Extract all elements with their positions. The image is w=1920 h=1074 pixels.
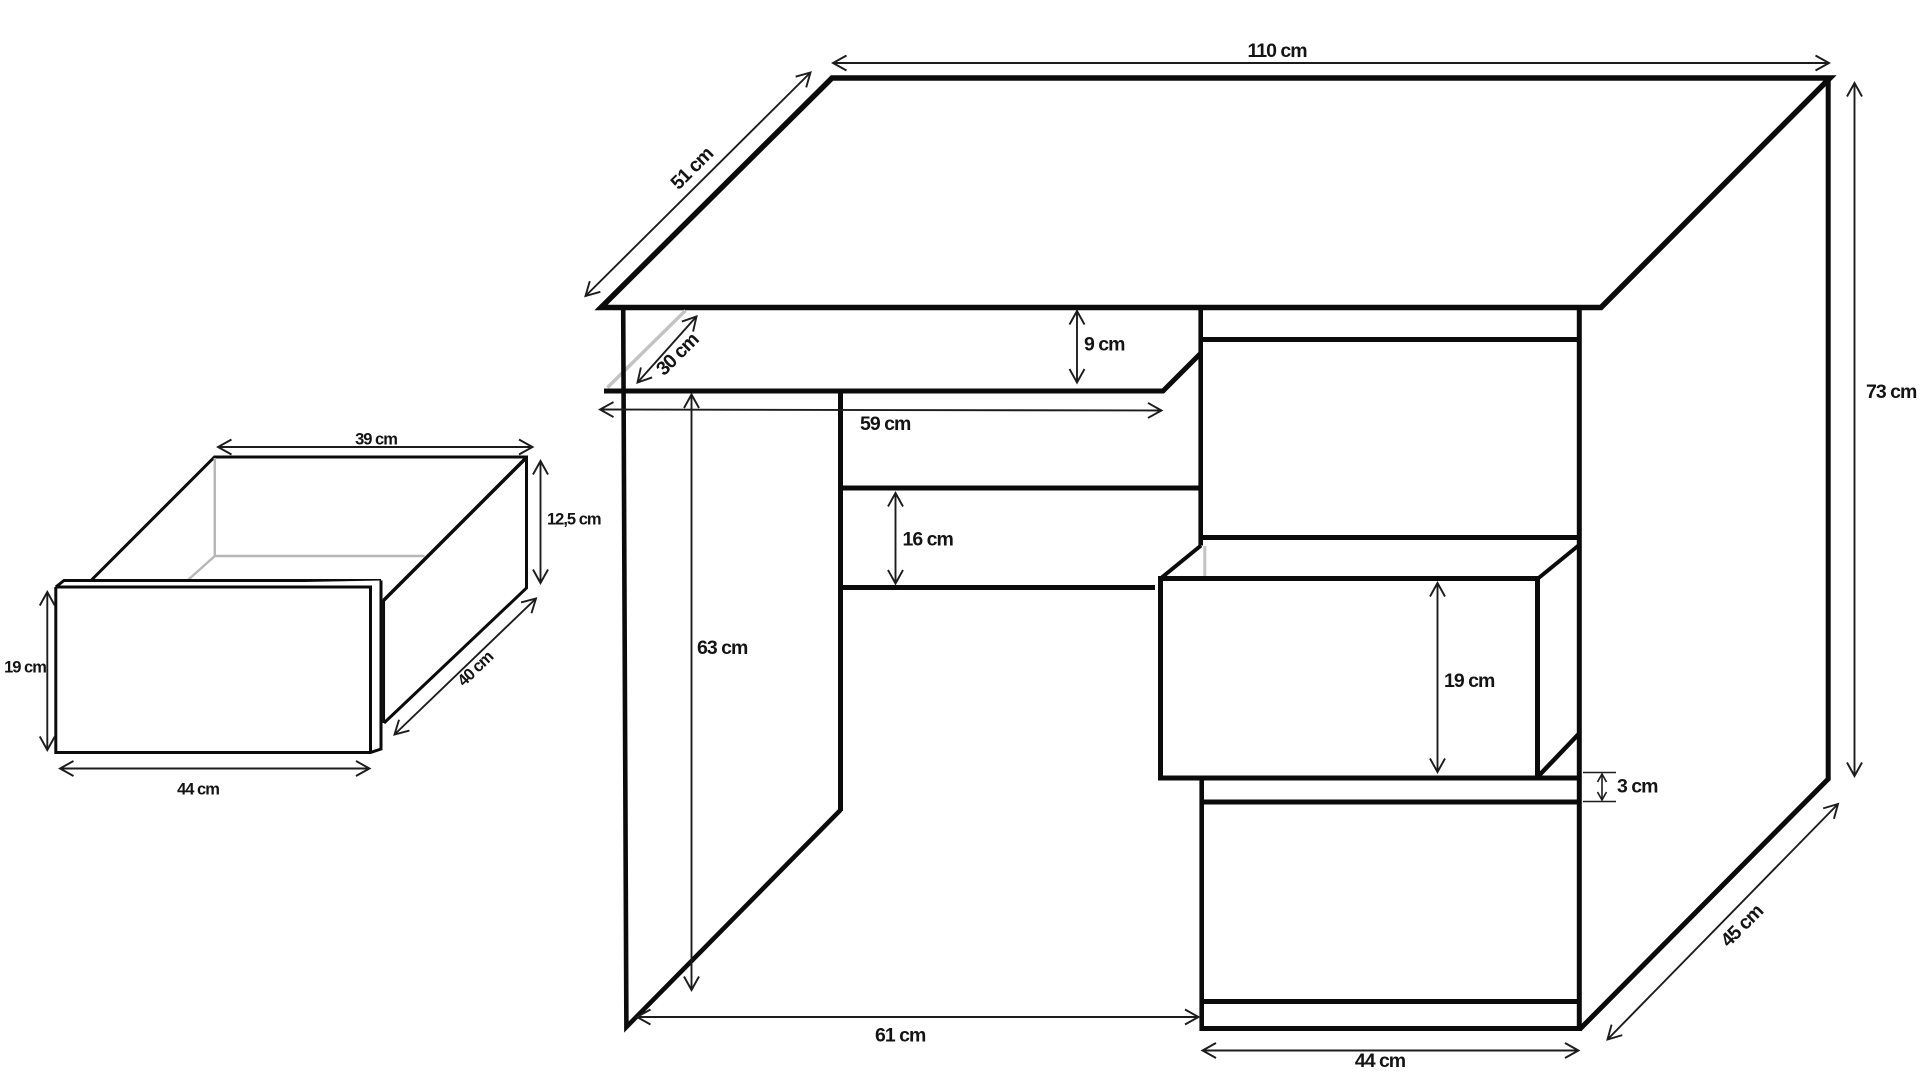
svg-text:3 cm: 3 cm — [1617, 776, 1658, 798]
svg-text:63 cm: 63 cm — [697, 637, 748, 659]
svg-text:12,5 cm: 12,5 cm — [547, 511, 601, 529]
svg-text:19 cm: 19 cm — [1444, 670, 1495, 692]
svg-text:61 cm: 61 cm — [875, 1025, 926, 1047]
svg-text:110 cm: 110 cm — [1247, 40, 1307, 62]
svg-text:73 cm: 73 cm — [1866, 381, 1917, 403]
svg-text:39 cm: 39 cm — [355, 431, 397, 449]
svg-text:19 cm: 19 cm — [4, 659, 46, 677]
svg-text:44 cm: 44 cm — [177, 781, 219, 799]
svg-text:9 cm: 9 cm — [1084, 334, 1125, 356]
svg-text:44 cm: 44 cm — [1355, 1050, 1406, 1072]
svg-text:16 cm: 16 cm — [903, 529, 954, 551]
svg-text:59 cm: 59 cm — [860, 413, 911, 435]
